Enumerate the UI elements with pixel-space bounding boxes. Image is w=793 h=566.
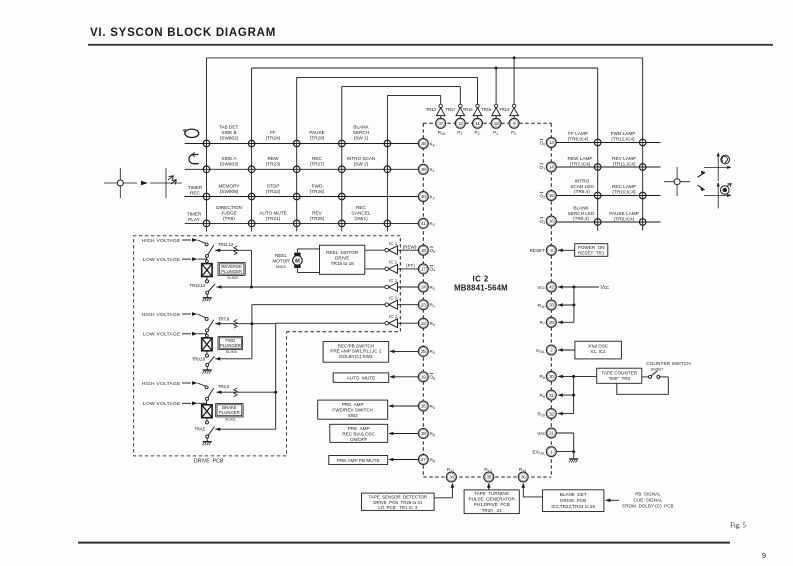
svg-text:MB8841-564M: MB8841-564M xyxy=(454,284,508,293)
svg-text:DRIVE PCB: DRIVE PCB xyxy=(194,459,224,465)
svg-text:PRE AMP: PRE AMP xyxy=(342,402,364,407)
svg-text:REC/PB SWITCH: REC/PB SWITCH xyxy=(338,343,375,348)
svg-text:(TR26): (TR26) xyxy=(310,189,325,194)
svg-text:M: M xyxy=(295,259,300,265)
svg-text:(TR21): (TR21) xyxy=(266,216,281,221)
svg-text:TR7,8: TR7,8 xyxy=(218,317,230,322)
svg-text:TIMER: TIMER xyxy=(187,212,202,217)
svg-text:FROM DOLBY (C) PCB: FROM DOLBY (C) PCB xyxy=(622,503,673,508)
svg-text:SIDE A: SIDE A xyxy=(221,156,237,161)
svg-text:REC: REC xyxy=(312,156,323,161)
svg-text:28: 28 xyxy=(421,431,426,436)
svg-text:ON/OFF: ON/OFF xyxy=(350,437,368,442)
svg-text:29: 29 xyxy=(549,320,554,325)
svg-text:18: 18 xyxy=(421,248,426,253)
svg-text:BLANK: BLANK xyxy=(353,125,369,130)
svg-text:TAPE SENSOR DETECTOR: TAPE SENSOR DETECTOR xyxy=(368,494,427,499)
svg-text:12: 12 xyxy=(458,121,463,126)
svg-text:40: 40 xyxy=(421,194,426,199)
svg-text:PB SIGNAL: PB SIGNAL xyxy=(635,491,661,496)
svg-text:Vcc: Vcc xyxy=(537,285,545,290)
svg-text:SERCH: SERCH xyxy=(353,130,369,135)
svg-text:IC 1: IC 1 xyxy=(389,314,398,319)
svg-text:STOP: STOP xyxy=(267,184,280,189)
svg-text:MOTOR: MOTOR xyxy=(272,258,290,263)
svg-text:X'tal OSC: X'tal OSC xyxy=(588,344,609,349)
svg-text:PLUNGER: PLUNGER xyxy=(219,410,240,415)
svg-text:TR2,3: TR2,3 xyxy=(218,384,230,389)
svg-text:(TR6,4): (TR6,4) xyxy=(574,189,590,194)
svg-text:LOW VOLTAGE: LOW VOLTAGE xyxy=(143,401,181,407)
svg-text:TR9,10: TR9,10 xyxy=(192,356,206,361)
svg-text:REC LAMP: REC LAMP xyxy=(612,184,636,189)
svg-text:DRIVE: DRIVE xyxy=(335,255,349,260)
svg-text:IC 1: IC 1 xyxy=(389,278,398,283)
svg-text:REC: REC xyxy=(356,205,367,210)
svg-text:30: 30 xyxy=(549,374,554,379)
svg-text:31: 31 xyxy=(549,393,554,398)
svg-text:25: 25 xyxy=(421,349,426,354)
svg-text:13: 13 xyxy=(549,140,554,145)
svg-text:PRE AMP PB MUTE: PRE AMP PB MUTE xyxy=(337,458,380,463)
svg-text:(TR22): (TR22) xyxy=(266,189,281,194)
svg-text:BLANK: BLANK xyxy=(573,206,589,211)
svg-text:(SW902): (SW902) xyxy=(220,135,239,140)
svg-text:(TR7,IC4): (TR7,IC4) xyxy=(570,161,591,166)
svg-text:HIGH VOLTAGE: HIGH VOLTAGE xyxy=(142,238,181,244)
svg-text:DRIVE PCB TR28 to 31: DRIVE PCB TR28 to 31 xyxy=(373,500,423,505)
svg-text:(TR28): (TR28) xyxy=(310,136,325,141)
svg-text:REC BIAS OSC: REC BIAS OSC xyxy=(342,432,375,437)
svg-text:IC 1: IC 1 xyxy=(389,260,398,265)
svg-text:IC 2: IC 2 xyxy=(472,274,488,283)
svg-text:DIRECTION: DIRECTION xyxy=(216,205,242,210)
svg-text:(TR11,IC4): (TR11,IC4) xyxy=(613,161,636,166)
svg-text:HIGH VOLTAGE: HIGH VOLTAGE xyxy=(142,381,181,387)
svg-text:HIGH VOLTAGE: HIGH VOLTAGE xyxy=(142,312,181,318)
svg-text:REW LAMP: REW LAMP xyxy=(567,156,592,161)
svg-text:PLUNGER: PLUNGER xyxy=(221,269,242,274)
svg-text:TR16: TR16 xyxy=(463,107,474,112)
svg-text:TR15: TR15 xyxy=(481,107,492,112)
svg-text:IC 1: IC 1 xyxy=(389,241,398,246)
svg-text:24: 24 xyxy=(421,285,426,290)
svg-text:Vcc: Vcc xyxy=(601,285,610,291)
svg-text:COUNTER SWITCH: COUNTER SWITCH xyxy=(646,361,690,366)
svg-text:15: 15 xyxy=(549,193,554,198)
svg-text:9: 9 xyxy=(762,551,766,560)
svg-text:(SW 2): (SW 2) xyxy=(354,162,369,167)
svg-text:SCAN LED: SCAN LED xyxy=(570,184,594,189)
svg-text:PLUNGER: PLUNGER xyxy=(220,343,241,348)
svg-text:41: 41 xyxy=(421,221,426,226)
svg-text:REEL: REEL xyxy=(275,253,288,258)
svg-text:BLANK DET: BLANK DET xyxy=(560,492,587,497)
svg-text:REC: REC xyxy=(190,190,201,195)
svg-text:17: 17 xyxy=(421,267,426,272)
svg-text:TR13,14: TR13,14 xyxy=(190,283,206,288)
svg-text:(TR25): (TR25) xyxy=(310,216,325,221)
svg-text:32: 32 xyxy=(549,411,554,416)
svg-text:CANCEL: CANCEL xyxy=(351,211,370,216)
svg-text:27: 27 xyxy=(421,457,426,462)
svg-text:FWD/REV SWITCH: FWD/REV SWITCH xyxy=(332,407,373,412)
svg-text:(TR23): (TR23) xyxy=(266,162,281,167)
svg-text:SW2: SW2 xyxy=(348,413,358,418)
svg-text:MEMORY: MEMORY xyxy=(218,184,240,189)
svg-text:FF: FF xyxy=(270,130,276,135)
svg-text:SL903: SL903 xyxy=(226,350,237,354)
svg-text:(TR8): (TR8) xyxy=(223,216,235,221)
svg-text:26: 26 xyxy=(421,404,426,409)
svg-text:LO PCB TR1 to 3: LO PCB TR1 to 3 xyxy=(378,505,418,510)
svg-text:PH1,DRIVE PCB: PH1,DRIVE PCB xyxy=(474,502,510,507)
svg-text:"000" TR2: "000" TR2 xyxy=(608,376,631,381)
svg-text:POWER ON: POWER ON xyxy=(578,245,605,250)
svg-text:PRE AMP: PRE AMP xyxy=(348,426,370,431)
svg-text:(TR5,3): (TR5,3) xyxy=(573,216,589,221)
svg-text:SERCH LED: SERCH LED xyxy=(568,211,595,216)
svg-text:REEL MOTOR: REEL MOTOR xyxy=(326,250,359,255)
svg-text:AUTO MUTE: AUTO MUTE xyxy=(347,376,376,381)
svg-text:TR20 , 21: TR20 , 21 xyxy=(482,508,503,513)
svg-text:SIDE B: SIDE B xyxy=(221,130,236,135)
svg-text:SW907: SW907 xyxy=(651,366,664,371)
svg-text:TR17: TR17 xyxy=(445,107,456,112)
svg-text:TR15 to 18: TR15 to 18 xyxy=(331,261,355,266)
svg-text:42: 42 xyxy=(549,285,554,290)
svg-text:DOLBY(C) SW3: DOLBY(C) SW3 xyxy=(339,354,373,359)
svg-text:IC2,TR22,TR24 to 26: IC2,TR22,TR24 to 26 xyxy=(551,504,595,509)
svg-text:19: 19 xyxy=(421,375,426,380)
svg-text:INTRO SCAN: INTRO SCAN xyxy=(347,156,376,161)
svg-text:16: 16 xyxy=(549,219,554,224)
svg-text:PRE AMP SW1,RL1,IC 2: PRE AMP SW1,RL1,IC 2 xyxy=(330,349,381,354)
svg-text:22: 22 xyxy=(421,321,426,326)
svg-text:INTRO: INTRO xyxy=(575,179,590,184)
svg-text:33: 33 xyxy=(549,303,554,308)
svg-text:(TR12,IC4): (TR12,IC4) xyxy=(611,136,635,141)
svg-text:M902: M902 xyxy=(276,264,287,269)
svg-text:(TR10,IC4): (TR10,IC4) xyxy=(612,189,636,194)
svg-text:CUE SIGNAL: CUE SIGNAL xyxy=(633,497,663,502)
svg-text:14: 14 xyxy=(549,165,554,170)
svg-text:(REW): (REW) xyxy=(403,244,417,249)
svg-text:(TR27): (TR27) xyxy=(310,162,325,167)
svg-text:X1, IC1: X1, IC1 xyxy=(590,349,606,354)
svg-text:(SW903): (SW903) xyxy=(220,162,239,167)
svg-text:TR13: TR13 xyxy=(426,107,437,112)
svg-text:SL902: SL902 xyxy=(227,276,238,280)
svg-text:TAPE COUNTER: TAPE COUNTER xyxy=(601,370,637,375)
svg-text:11: 11 xyxy=(475,121,480,126)
svg-text:35: 35 xyxy=(486,475,491,480)
svg-text:10: 10 xyxy=(494,121,499,126)
svg-text:AUTO MUTE: AUTO MUTE xyxy=(259,211,287,216)
svg-text:39: 39 xyxy=(421,167,426,172)
svg-text:REV: REV xyxy=(312,211,323,216)
svg-text:(TR8,IC4): (TR8,IC4) xyxy=(568,136,589,141)
svg-text:FWD LAMP: FWD LAMP xyxy=(611,131,636,136)
svg-text:TIMER: TIMER xyxy=(188,185,203,190)
svg-text:REV LAMP: REV LAMP xyxy=(612,156,636,161)
svg-text:PAUSE: PAUSE xyxy=(309,130,325,135)
svg-text:Vss: Vss xyxy=(537,431,545,436)
svg-text:38: 38 xyxy=(421,141,426,146)
svg-text:FF LAMP: FF LAMP xyxy=(568,131,588,136)
svg-text:PLAY: PLAY xyxy=(188,217,201,222)
svg-text:(TR9,IC4): (TR9,IC4) xyxy=(614,216,635,221)
svg-text:RESET TR1: RESET TR1 xyxy=(578,251,605,256)
svg-text:JUDGE: JUDGE xyxy=(221,211,237,216)
svg-text:36: 36 xyxy=(521,475,526,480)
svg-text:(FF): (FF) xyxy=(406,263,415,268)
svg-text:(SW1): (SW1) xyxy=(354,216,368,221)
svg-text:DRIVE PCB: DRIVE PCB xyxy=(560,498,586,503)
svg-text:SL901: SL901 xyxy=(225,418,236,422)
svg-text:FWD: FWD xyxy=(312,184,323,189)
svg-text:PAUSE LAMP: PAUSE LAMP xyxy=(609,211,639,216)
svg-text:TAB DET.: TAB DET. xyxy=(219,125,239,130)
svg-text:23: 23 xyxy=(421,302,426,307)
svg-text:TAPE TURNING: TAPE TURNING xyxy=(474,491,509,496)
svg-text:TR14: TR14 xyxy=(499,107,510,112)
svg-text:(SW908): (SW908) xyxy=(220,189,239,194)
svg-text:(TR24): (TR24) xyxy=(266,136,281,141)
svg-text:RESET: RESET xyxy=(530,248,546,253)
svg-text:(SW 1): (SW 1) xyxy=(354,135,369,140)
svg-text:21: 21 xyxy=(549,431,554,436)
svg-text:LOW VOLTAGE: LOW VOLTAGE xyxy=(143,257,181,263)
svg-text:PULSE GENERATOR: PULSE GENERATOR xyxy=(469,497,516,502)
svg-text:VI. SYSCON BLOCK DIAGRAM: VI. SYSCON BLOCK DIAGRAM xyxy=(90,27,276,39)
svg-text:TR4,5: TR4,5 xyxy=(194,427,206,432)
svg-text:IC 1: IC 1 xyxy=(389,296,398,301)
svg-text:34: 34 xyxy=(449,475,454,480)
svg-text:TR11,12: TR11,12 xyxy=(218,242,234,247)
svg-text:Fig. 5: Fig. 5 xyxy=(730,523,746,530)
svg-text:REW: REW xyxy=(268,156,280,161)
svg-text:LOW VOLTAGE: LOW VOLTAGE xyxy=(143,332,181,338)
svg-text:37: 37 xyxy=(438,121,443,126)
